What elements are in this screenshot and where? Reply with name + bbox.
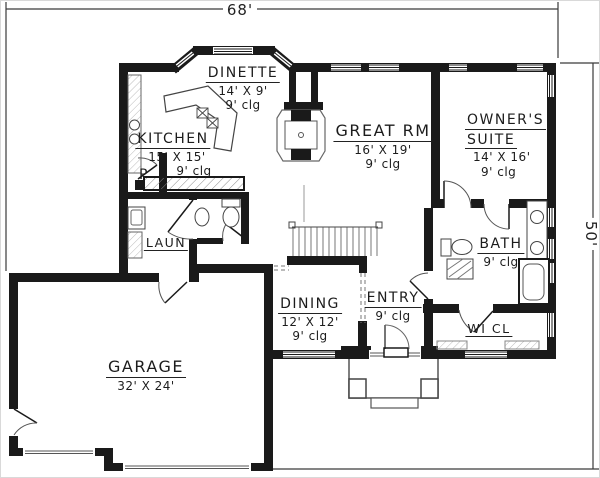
dining-ceiling: 9' clg (278, 330, 342, 343)
closet-shelves (437, 341, 539, 349)
powder-toilet-icon (222, 199, 240, 227)
fireplace (277, 72, 325, 161)
great-room-size: 16' X 19' (333, 144, 432, 157)
dinette-label: DINETTE 14' X 9' 9' clg (206, 64, 280, 112)
walk-in-closet-label: WI CL (465, 320, 512, 337)
entry-ceiling: 9' clg (365, 310, 422, 323)
dining-label: DINING 12' X 12' 9' clg (278, 295, 342, 343)
dinette-size: 14' X 9' (206, 85, 280, 98)
garage-name: GARAGE (106, 359, 186, 378)
bath-toilet-icon (441, 239, 472, 256)
dining-size: 12' X 12' (278, 316, 342, 329)
pantry-label: P (137, 166, 151, 184)
walk-in-closet-name: WI CL (465, 322, 512, 337)
dinette-name: DINETTE (206, 66, 280, 83)
owners-suite-name-line2: SUITE (465, 133, 517, 150)
entry-label: ENTRY 9' clg (365, 289, 422, 322)
owners-suite-label: OWNER'S SUITE 14' X 16' 9' clg (465, 111, 546, 179)
porch (349, 359, 438, 408)
height-dimension: 50' (582, 218, 600, 250)
pantry-name: P (137, 168, 151, 184)
kitchen-ceiling: 9' clg (176, 165, 211, 178)
great-room-name: GREAT RM (333, 123, 432, 142)
owners-suite-name-line1: OWNER'S (465, 113, 546, 130)
front-door (369, 325, 421, 359)
great-room-ceiling: 9' clg (333, 158, 432, 171)
powder-sink-icon (195, 208, 209, 226)
great-room-label: GREAT RM 16' X 19' 9' clg (333, 123, 432, 171)
floor-plan: 68' 50' DINETTE 14' X 9' 9' clg KITCHEN … (0, 0, 600, 478)
laundry-label: LAUN (144, 234, 188, 251)
garage-label: GARAGE 32' X 24' (106, 359, 186, 392)
front-step (371, 398, 418, 408)
bath-name: BATH (477, 237, 524, 254)
kitchen-size: 15' X 15' (142, 151, 211, 164)
width-dimension: 68' (224, 1, 256, 19)
dinette-ceiling: 9' clg (206, 99, 280, 112)
bath-ceiling: 9' clg (477, 256, 524, 269)
dining-name: DINING (278, 297, 342, 314)
washer-dryer-icon (128, 207, 145, 258)
kitchen-name: KITCHEN (135, 132, 210, 149)
bath-label: BATH 9' clg (477, 235, 524, 268)
laundry-name: LAUN (144, 236, 188, 251)
owners-suite-size: 14' X 16' (473, 151, 546, 164)
garage-size: 32' X 24' (106, 380, 186, 393)
entry-name: ENTRY (365, 291, 422, 308)
shower-icon (447, 259, 473, 279)
owners-suite-ceiling: 9' clg (481, 166, 546, 179)
vanity-sinks-icon (527, 201, 547, 264)
garage-doors (23, 448, 251, 471)
